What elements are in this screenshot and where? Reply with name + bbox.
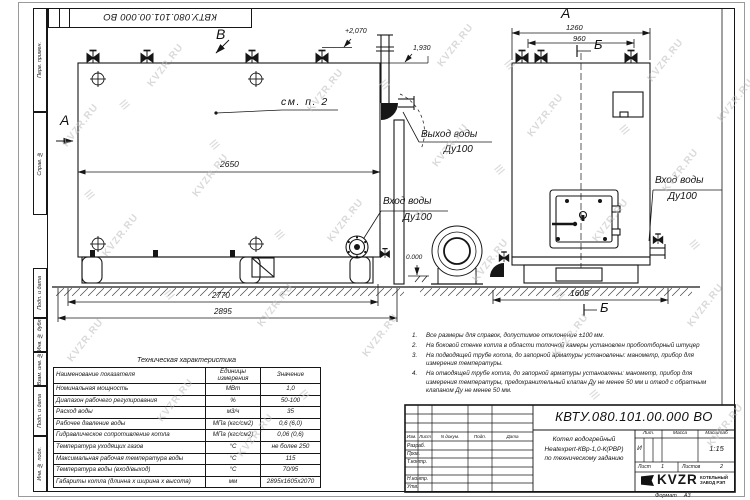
tb-col-izm: Изм. [405, 434, 418, 439]
tech-cell-value: не более 250 [261, 441, 321, 453]
note-text: На подводящей трубе котла, до запорной а… [426, 352, 718, 369]
dim-1260: 1260 [566, 23, 583, 32]
tech-row: Температура воды (вход/выход)°С70/95 [54, 465, 321, 477]
note-number: 4. [412, 370, 426, 395]
tb-col-data: Дата [492, 434, 533, 439]
tb-col-list: Лист [418, 434, 432, 439]
frame-label: Справ. № [37, 151, 43, 176]
tech-cell-value: 50-100 [261, 395, 321, 407]
tech-row: Максимальная рабочая температура воды°С1… [54, 453, 321, 465]
elevation-1930: 1,930 [413, 45, 431, 52]
tech-table: Наименование показателя Единицы измерени… [53, 367, 321, 488]
view-label-a-left: А [60, 112, 69, 128]
tech-cell-name: Гидравлическое сопротивление котла [54, 430, 206, 442]
tb-sheets-label: Листов [682, 464, 700, 470]
tech-header-row: Наименование показателя Единицы измерени… [54, 368, 321, 384]
stamp-divider [59, 9, 60, 27]
frame-label-box: Подп. и дата [33, 386, 47, 436]
tech-cell-unit: °С [206, 453, 261, 465]
tech-cell-unit: МВт [206, 384, 261, 396]
dim-960: 960 [573, 34, 586, 43]
tech-cell-value: 35 [261, 407, 321, 419]
company-name: КОТЕЛЬНЫЙ ЗАВОД РЭП [700, 475, 728, 486]
tb-col-podp: Подп. [468, 434, 492, 439]
stamp-divider [69, 9, 70, 27]
note-number: 1. [412, 332, 426, 340]
frame-label: Взам. инв. № [37, 352, 43, 386]
tech-cell-value: 70/95 [261, 465, 321, 477]
tb-scale-value: 1:15 [698, 444, 735, 453]
frame-label-box: Взам. инв. № [33, 352, 47, 386]
note-item: 3.На подводящей трубе котла, до запорной… [412, 352, 718, 369]
note-item: 4.На отводящей трубе котла, до запорной … [412, 370, 718, 395]
drawing-sheet: KVZR.RU KVZR.RU KVZR.RU KVZR.RU KVZR.RU … [0, 0, 750, 500]
tech-cell-value: 115 [261, 453, 321, 465]
frame-label: Перв. примен. [37, 42, 43, 78]
tech-cell-name: Рабочее давление воды [54, 418, 206, 430]
tech-col-value: Значение [261, 368, 321, 384]
tb-sheet-label: Лист [638, 464, 651, 470]
tb-col-ndoc: N докум. [432, 434, 468, 439]
note-item: 2.На боковой стенке котла в области топо… [412, 342, 718, 350]
tech-cell-value: 0,6 (6,0) [261, 418, 321, 430]
tb-scale-label: Масштаб [698, 431, 735, 436]
tech-cell-name: Габариты котла (длинна х ширина х высота… [54, 476, 206, 488]
inlet-water-label-left: Вход воды [383, 196, 432, 207]
tb-desc-line2: Heatexpert-КВр-1,0-К(РВР) [535, 446, 633, 453]
tech-cell-name: Расход воды [54, 407, 206, 419]
tb-sheet-value: 1 [661, 464, 664, 470]
tech-cell-unit: % [206, 395, 261, 407]
tb-mass-label: Масса [662, 431, 698, 436]
tech-cell-unit: м3/ч [206, 407, 261, 419]
dim-2770: 2770 [212, 291, 230, 300]
tech-cell-unit: °С [206, 441, 261, 453]
frame-label-box: Справ. № [33, 112, 47, 215]
format-value: А3 [684, 493, 691, 499]
dimension-lines [58, 28, 668, 322]
tech-row: Габариты котла (длинна х ширина х высота… [54, 476, 321, 488]
tb-role-utv: Утв. [407, 484, 418, 490]
tech-row: Гидравлическое сопротивление котлаМПа (к… [54, 430, 321, 442]
elevation-zero: 0.000 [406, 254, 422, 261]
tech-cell-unit: МПа (кгс/см2) [206, 430, 261, 442]
tb-role-nkontr: Н.контр. [407, 476, 428, 482]
tech-characteristics-table: Техническая характеристика Наименование … [53, 355, 320, 488]
tb-lit-label: Лит. [635, 431, 662, 436]
outlet-water-dn: Ду100 [444, 144, 473, 155]
tech-row: Номинальная мощностьМВт1,0 [54, 384, 321, 396]
frame-label-box: Подп. и дата [33, 268, 47, 318]
note-number: 2. [412, 342, 426, 350]
tb-role-tkontr: Т.контр. [407, 459, 427, 465]
tech-row: Диапазон рабочего регулирования%50-100 [54, 395, 321, 407]
tech-col-name: Наименование показателя [54, 368, 206, 384]
right-view [490, 51, 665, 284]
note-item: 1.Все размеры для справок, допустимое от… [412, 332, 718, 340]
notes-list: 1.Все размеры для справок, допустимое от… [412, 332, 718, 397]
see-note-label: см. п. 2 [281, 96, 329, 108]
fan-blower [431, 226, 483, 284]
company-line2: ЗАВОД РЭП [700, 480, 728, 485]
view-label-a-right: А [561, 5, 570, 21]
tech-row: Расход водым3/ч35 [54, 407, 321, 419]
tb-role-razrab: Разраб. [407, 443, 425, 449]
format-label: Формат [655, 493, 677, 499]
section-label-b-bottom: Б [600, 300, 608, 315]
note-text: На боковой стенке котла в области топочн… [426, 342, 718, 350]
inlet-water-dn-left: Ду100 [403, 212, 432, 223]
tech-cell-name: Диапазон рабочего регулирования [54, 395, 206, 407]
frame-label: Подп. и дата [37, 394, 43, 428]
frame-label-box: Инв. № дубл. [33, 318, 47, 352]
dim-2895: 2895 [214, 307, 232, 316]
tb-sheets-value: 2 [720, 464, 723, 470]
note-number: 3. [412, 352, 426, 369]
note-text: Все размеры для справок, допустимое откл… [426, 332, 718, 340]
elevation-2070: +2,070 [345, 28, 367, 35]
tech-cell-value: 0,06 (0,6) [261, 430, 321, 442]
outlet-water-label: Выход воды [421, 129, 477, 140]
tech-cell-value: 1,0 [261, 384, 321, 396]
section-label-b-top: Б [594, 37, 602, 52]
format-note: ФорматА3 [655, 493, 698, 499]
tech-cell-name: Температура уходящих газов [54, 441, 206, 453]
dim-2650: 2650 [220, 159, 239, 169]
ground-line [52, 287, 700, 296]
tech-cell-name: Номинальная мощность [54, 384, 206, 396]
tb-desc-line1: Котел водогрейный [535, 436, 633, 443]
frame-label: Инв. № дубл. [37, 318, 43, 351]
tb-role-prov: Пров. [407, 451, 420, 457]
tech-row: Рабочее давление водыМПа (кгс/см2)0,6 (6… [54, 418, 321, 430]
view-label-b-top: В [216, 26, 225, 42]
frame-label-box: Перв. примен. [33, 8, 47, 112]
tech-row: Температура уходящих газов°Сне более 250 [54, 441, 321, 453]
tb-desc-line3: по техническому заданию [535, 455, 633, 462]
doc-number-inverted: КВТУ.080.101.00.000 ВО [71, 11, 249, 22]
tb-lit-value: И [635, 445, 644, 452]
kvzr-logo-text: KVZR [657, 472, 698, 487]
frame-label: Инв. № подл. [37, 447, 43, 481]
tech-table-title: Техническая характеристика [53, 355, 320, 367]
tech-cell-value: 2895х1605х2070 [261, 476, 321, 488]
tech-cell-unit: МПа (кгс/см2) [206, 418, 261, 430]
doc-number: КВТУ.080.101.00.000 ВО [536, 409, 732, 424]
inlet-water-dn-right: Ду100 [668, 191, 697, 202]
frame-label-box: Инв. № подл. [33, 436, 47, 492]
tech-cell-name: Температура воды (вход/выход) [54, 465, 206, 477]
tech-cell-unit: °С [206, 465, 261, 477]
tech-cell-name: Максимальная рабочая температура воды [54, 453, 206, 465]
tech-cell-unit: мм [206, 476, 261, 488]
dim-1605: 1605 [570, 288, 589, 298]
frame-label: Подп. и дата [37, 276, 43, 310]
inlet-water-label-right: Вход воды [655, 175, 704, 186]
left-view [78, 35, 428, 284]
tech-col-units: Единицы измерения [206, 368, 261, 384]
note-text: На отводящей трубе котла, до запорной ар… [426, 370, 718, 395]
top-stamp: КВТУ.080.101.00.000 ВО [48, 8, 252, 28]
